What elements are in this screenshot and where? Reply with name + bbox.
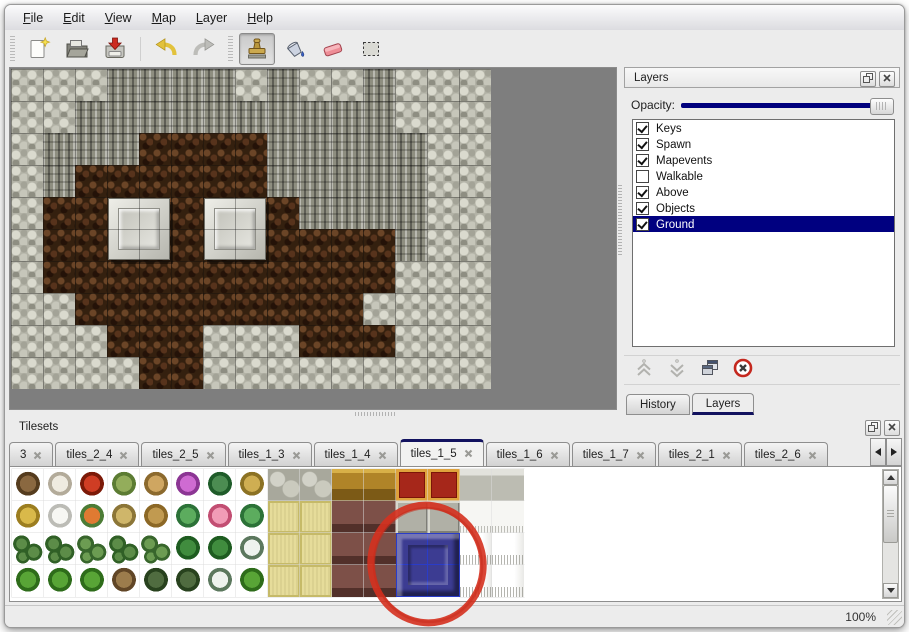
tileset-tile-gold[interactable] bbox=[364, 469, 396, 501]
menu-view[interactable]: View bbox=[95, 8, 142, 28]
map-tile bbox=[203, 133, 235, 165]
map-tile bbox=[299, 293, 331, 325]
tileset-tab-tiles_2_6[interactable]: tiles_2_6 bbox=[744, 442, 828, 466]
zoom-level: 100% bbox=[845, 610, 876, 624]
tab-close-icon[interactable] bbox=[378, 451, 387, 460]
tileset-tab-tiles_2_5[interactable]: tiles_2_5 bbox=[141, 442, 225, 466]
splitter-grip bbox=[618, 185, 622, 255]
map-tile bbox=[459, 261, 491, 293]
map-tile bbox=[427, 325, 459, 357]
tileset-tab-tiles_1_5[interactable]: tiles_1_5 bbox=[400, 439, 484, 466]
tab-close-icon[interactable] bbox=[722, 451, 731, 460]
tileset-tile-wood[interactable] bbox=[332, 565, 364, 597]
tileset-tile-lily[interactable] bbox=[172, 501, 204, 533]
tileset-tab-label: tiles_2_5 bbox=[152, 449, 198, 461]
map-tile bbox=[171, 357, 203, 389]
tabs-scroll-right-button[interactable] bbox=[886, 438, 902, 466]
tileset-tile-drytree[interactable] bbox=[108, 565, 140, 597]
map-tile bbox=[395, 293, 427, 325]
tileset-tile-empty[interactable] bbox=[524, 501, 556, 533]
map-tile bbox=[171, 197, 203, 229]
map-tile bbox=[363, 165, 395, 197]
tileset-tile-mat[interactable] bbox=[268, 565, 300, 597]
map-tile bbox=[203, 357, 235, 389]
tileset-tile-wood[interactable] bbox=[332, 501, 364, 533]
tileset-tile-branch[interactable] bbox=[44, 469, 76, 501]
map-tile bbox=[107, 325, 139, 357]
map-tile bbox=[331, 165, 363, 197]
menu-map[interactable]: Map bbox=[142, 8, 186, 28]
toolbar-grip[interactable] bbox=[228, 36, 233, 62]
vertical-splitter[interactable] bbox=[617, 67, 624, 410]
tileset-tile-mat[interactable] bbox=[300, 565, 332, 597]
map-tile bbox=[427, 229, 459, 261]
tileset-tile-conetree[interactable] bbox=[76, 565, 108, 597]
selected-tile-highlight[interactable] bbox=[396, 533, 460, 597]
map-editor-window: FileEditViewMapLayerHelp Layers Opacity:… bbox=[4, 4, 905, 628]
map-tile bbox=[43, 197, 75, 229]
map-tile bbox=[267, 229, 299, 261]
tileset-tile-stone[interactable] bbox=[300, 469, 332, 501]
redo-button[interactable] bbox=[186, 33, 222, 65]
tileset-tile-silver[interactable] bbox=[460, 469, 492, 501]
map-tile bbox=[107, 357, 139, 389]
layer-checkbox[interactable] bbox=[636, 186, 649, 199]
redo-icon bbox=[191, 36, 217, 62]
map-tile bbox=[171, 293, 203, 325]
tileset-tile-stone[interactable] bbox=[268, 469, 300, 501]
tileset-tile-trunk2[interactable] bbox=[140, 469, 172, 501]
tileset-tile-palm[interactable] bbox=[204, 533, 236, 565]
map-tile bbox=[331, 133, 363, 165]
tileset-tab-3[interactable]: 3 bbox=[9, 442, 53, 466]
map-tile bbox=[363, 325, 395, 357]
layer-name: Walkable bbox=[656, 171, 703, 183]
map-tile bbox=[75, 357, 107, 389]
tileset-tile-mat[interactable] bbox=[268, 501, 300, 533]
map-tile bbox=[331, 69, 363, 101]
tileset-tab-tiles_2_1[interactable]: tiles_2_1 bbox=[658, 442, 742, 466]
tileset-tile-stump[interactable] bbox=[108, 469, 140, 501]
splitter-grip bbox=[355, 412, 395, 416]
map-tile bbox=[139, 325, 171, 357]
tileset-tile-blockgray[interactable] bbox=[428, 501, 460, 533]
map-tile bbox=[395, 261, 427, 293]
map-tile bbox=[267, 357, 299, 389]
eraser-icon bbox=[320, 36, 346, 62]
tileset-tile-conetree[interactable] bbox=[236, 565, 268, 597]
map-tile bbox=[395, 197, 427, 229]
float-panel-button[interactable] bbox=[865, 420, 881, 436]
map-tile bbox=[235, 165, 267, 197]
chevron-down-icon bbox=[666, 357, 688, 384]
map-tile bbox=[171, 261, 203, 293]
triangle-left-icon bbox=[875, 448, 881, 456]
map-tile bbox=[75, 197, 107, 229]
tileset-tile-palm[interactable] bbox=[172, 533, 204, 565]
map-tile bbox=[11, 325, 43, 357]
map-tile bbox=[395, 357, 427, 389]
layer-row-objects[interactable]: Objects bbox=[633, 200, 894, 216]
map-tile bbox=[171, 229, 203, 261]
stone-platform bbox=[108, 198, 170, 260]
menu-edit[interactable]: Edit bbox=[53, 8, 95, 28]
save-icon bbox=[102, 36, 128, 62]
move-layer-up-button[interactable] bbox=[632, 358, 656, 382]
map-tile bbox=[107, 133, 139, 165]
map-tile bbox=[43, 293, 75, 325]
map-tile bbox=[75, 69, 107, 101]
tileset-tile-blockgray[interactable] bbox=[396, 501, 428, 533]
open-button[interactable] bbox=[59, 33, 95, 65]
layer-name: Keys bbox=[656, 123, 682, 135]
layer-checkbox[interactable] bbox=[636, 154, 649, 167]
tileset-tile-mat[interactable] bbox=[300, 501, 332, 533]
map-tile bbox=[427, 293, 459, 325]
horizontal-splitter[interactable] bbox=[9, 410, 902, 418]
layer-list: KeysSpawnMapeventsWalkableAboveObjectsGr… bbox=[632, 119, 895, 347]
map-tile bbox=[235, 357, 267, 389]
tileset-tile-gold[interactable] bbox=[332, 469, 364, 501]
map-tile bbox=[459, 165, 491, 197]
tileset-tab-label: tiles_1_4 bbox=[325, 449, 371, 461]
tileset-tab-bar: 3tiles_2_4tiles_2_5tiles_1_3tiles_1_4til… bbox=[9, 438, 902, 466]
map-tile bbox=[299, 261, 331, 293]
select-button[interactable] bbox=[353, 33, 389, 65]
tileset-tile-grass-dry[interactable] bbox=[108, 501, 140, 533]
tileset-tile-snowpine[interactable] bbox=[236, 533, 268, 565]
layer-name: Objects bbox=[656, 203, 695, 215]
map-tile bbox=[267, 165, 299, 197]
tileset-tile-darktree[interactable] bbox=[140, 565, 172, 597]
map-tile bbox=[235, 133, 267, 165]
tileset-tile-white[interactable] bbox=[492, 501, 524, 533]
map-tile bbox=[331, 293, 363, 325]
tileset-tile-bush[interactable] bbox=[140, 533, 172, 565]
map-tile bbox=[139, 165, 171, 197]
tileset-tile-plant-dry[interactable] bbox=[236, 469, 268, 501]
tileset-tile-lily[interactable] bbox=[236, 501, 268, 533]
map-tile bbox=[459, 101, 491, 133]
tab-close-icon[interactable] bbox=[550, 451, 559, 460]
map-tile bbox=[203, 261, 235, 293]
map-tile bbox=[171, 133, 203, 165]
map-tile bbox=[139, 293, 171, 325]
tileset-tab-tiles_2_4[interactable]: tiles_2_4 bbox=[55, 442, 139, 466]
scroll-up-button[interactable] bbox=[883, 470, 898, 485]
tileset-tile-shrub[interactable] bbox=[108, 533, 140, 565]
map-tile bbox=[299, 197, 331, 229]
map-tile bbox=[427, 197, 459, 229]
map-tile bbox=[459, 229, 491, 261]
layer-row-mapevents[interactable]: Mapevents bbox=[633, 152, 894, 168]
map-tile bbox=[235, 69, 267, 101]
map-tile bbox=[75, 325, 107, 357]
map-tile bbox=[459, 325, 491, 357]
map-tile bbox=[331, 261, 363, 293]
layer-checkbox[interactable] bbox=[636, 138, 649, 151]
tileset-scrollbar[interactable] bbox=[882, 469, 899, 599]
toolbar-grip[interactable] bbox=[10, 36, 15, 62]
undo-icon bbox=[153, 36, 179, 62]
stamp-tool-icon bbox=[244, 36, 270, 62]
map-tile bbox=[395, 325, 427, 357]
tileset-tile-hay[interactable] bbox=[12, 501, 44, 533]
tileset-tile-curtain[interactable] bbox=[460, 565, 492, 597]
map-tile bbox=[331, 101, 363, 133]
tab-close-icon[interactable] bbox=[206, 451, 215, 460]
layer-toolbar bbox=[624, 355, 900, 385]
layer-row-above[interactable]: Above bbox=[633, 184, 894, 200]
map-tile bbox=[235, 293, 267, 325]
map-tile bbox=[427, 69, 459, 101]
tileset-tab-label: tiles_2_6 bbox=[755, 449, 801, 461]
layer-row-ground[interactable]: Ground bbox=[633, 216, 894, 232]
layer-row-walkable[interactable]: Walkable bbox=[633, 168, 894, 184]
map-tile bbox=[107, 69, 139, 101]
map-tile bbox=[11, 133, 43, 165]
opacity-slider-handle[interactable] bbox=[870, 98, 894, 115]
tileset-tile-curtain[interactable] bbox=[460, 533, 492, 565]
tileset-tab-tiles_1_7[interactable]: tiles_1_7 bbox=[572, 442, 656, 466]
undo-button[interactable] bbox=[148, 33, 184, 65]
map-tile bbox=[459, 197, 491, 229]
map-tile bbox=[75, 229, 107, 261]
tileset-tile-carpet[interactable] bbox=[428, 469, 460, 501]
layer-row-keys[interactable]: Keys bbox=[633, 120, 894, 136]
map-tile bbox=[43, 165, 75, 197]
triangle-right-icon bbox=[891, 448, 897, 456]
scroll-down-button[interactable] bbox=[883, 583, 898, 598]
layer-name: Above bbox=[656, 187, 689, 199]
eraser-button[interactable] bbox=[315, 33, 351, 65]
new-button[interactable] bbox=[21, 33, 57, 65]
triangle-down-icon bbox=[887, 588, 895, 593]
tileset-tile-flower-purple[interactable] bbox=[172, 469, 204, 501]
map-tile bbox=[171, 101, 203, 133]
map-tile bbox=[203, 165, 235, 197]
layer-checkbox[interactable] bbox=[636, 170, 649, 183]
delete-layer-button[interactable] bbox=[731, 358, 755, 382]
layer-row-spawn[interactable]: Spawn bbox=[633, 136, 894, 152]
triangle-up-icon bbox=[887, 475, 895, 480]
map-tile bbox=[427, 101, 459, 133]
layer-checkbox[interactable] bbox=[636, 202, 649, 215]
map-tile bbox=[363, 69, 395, 101]
map-tile bbox=[171, 165, 203, 197]
layer-checkbox[interactable] bbox=[636, 122, 649, 135]
map-tile bbox=[11, 293, 43, 325]
opacity-slider-track[interactable] bbox=[681, 103, 886, 108]
move-layer-down-button[interactable] bbox=[665, 358, 689, 382]
map-tile bbox=[75, 261, 107, 293]
map-tile bbox=[363, 357, 395, 389]
map-tile bbox=[459, 293, 491, 325]
tileset-tile-flowers-pink[interactable] bbox=[204, 501, 236, 533]
map-tile bbox=[203, 325, 235, 357]
map-tile bbox=[75, 293, 107, 325]
map-tile bbox=[11, 197, 43, 229]
tileset-tile-curtain[interactable] bbox=[492, 533, 524, 565]
chevron-up-icon bbox=[633, 357, 655, 384]
map-tile bbox=[43, 357, 75, 389]
tileset-tile-empty[interactable] bbox=[524, 565, 556, 597]
tileset-tile-conetree[interactable] bbox=[12, 565, 44, 597]
layer-name: Mapevents bbox=[656, 155, 712, 167]
tileset-tile-shrub[interactable] bbox=[12, 533, 44, 565]
map-tile bbox=[299, 133, 331, 165]
tileset-tile-snowpine[interactable] bbox=[204, 565, 236, 597]
tab-close-icon[interactable] bbox=[464, 449, 473, 458]
tilesets-dock-panel: Tilesets 3tiles_2_4tiles_2_5tiles_1_3til… bbox=[9, 418, 902, 608]
layers-panel-title: Layers bbox=[634, 72, 669, 84]
tileset-content bbox=[9, 466, 902, 602]
layers-panel-titlebar: Layers bbox=[624, 67, 900, 88]
tileset-tab-tiles_1_6[interactable]: tiles_1_6 bbox=[486, 442, 570, 466]
close-panel-button[interactable] bbox=[884, 420, 900, 436]
map-tile bbox=[203, 101, 235, 133]
map-tile bbox=[427, 133, 459, 165]
tileset-tile-carpet[interactable] bbox=[396, 469, 428, 501]
tileset-tile-darktree[interactable] bbox=[172, 565, 204, 597]
fill-button[interactable] bbox=[277, 33, 313, 65]
float-panel-button[interactable] bbox=[860, 71, 876, 87]
tileset-tile-flower-red[interactable] bbox=[76, 469, 108, 501]
stamp-button[interactable] bbox=[239, 33, 275, 65]
float-icon bbox=[868, 419, 878, 437]
window-resize-grip[interactable] bbox=[887, 610, 902, 625]
tileset-tile-mat[interactable] bbox=[268, 533, 300, 565]
map-canvas[interactable] bbox=[11, 69, 491, 389]
tilesets-panel-titlebar: Tilesets bbox=[9, 418, 902, 438]
map-tile bbox=[363, 293, 395, 325]
map-tile bbox=[331, 197, 363, 229]
layer-checkbox[interactable] bbox=[636, 218, 649, 231]
map-tile bbox=[139, 357, 171, 389]
map-tile bbox=[43, 101, 75, 133]
map-tile bbox=[267, 69, 299, 101]
tileset-tile-leaves[interactable] bbox=[140, 501, 172, 533]
toolbar-separator bbox=[140, 37, 141, 61]
float-icon bbox=[863, 70, 873, 88]
tab-close-icon[interactable] bbox=[636, 451, 645, 460]
tabs-scroll-left-button[interactable] bbox=[870, 438, 886, 466]
tileset-tile-curtain[interactable] bbox=[492, 565, 524, 597]
map-panel bbox=[9, 67, 617, 410]
delete-icon bbox=[732, 357, 754, 384]
map-tile bbox=[107, 261, 139, 293]
tileset-tile-conetree[interactable] bbox=[44, 565, 76, 597]
tileset-tile-fern[interactable] bbox=[204, 469, 236, 501]
tileset-tile-mat[interactable] bbox=[300, 533, 332, 565]
map-tile bbox=[299, 229, 331, 261]
map-tile bbox=[75, 101, 107, 133]
map-tile bbox=[75, 133, 107, 165]
tab-close-icon[interactable] bbox=[292, 451, 301, 460]
map-tile bbox=[267, 261, 299, 293]
open-folder-icon bbox=[64, 36, 90, 62]
close-panel-button[interactable] bbox=[879, 71, 895, 87]
tileset-tile-wood[interactable] bbox=[364, 565, 396, 597]
map-tile bbox=[203, 293, 235, 325]
tileset-tile-silver[interactable] bbox=[492, 469, 524, 501]
layer-name: Spawn bbox=[656, 139, 691, 151]
tileset-tab-tiles_1_4[interactable]: tiles_1_4 bbox=[314, 442, 398, 466]
map-tile bbox=[395, 229, 427, 261]
tileset-tile-wood[interactable] bbox=[364, 501, 396, 533]
map-tile bbox=[299, 69, 331, 101]
map-tile bbox=[11, 261, 43, 293]
map-tile bbox=[395, 165, 427, 197]
map-tile bbox=[11, 165, 43, 197]
tileset-tile-snowmound[interactable] bbox=[44, 501, 76, 533]
map-tile bbox=[75, 165, 107, 197]
menu-file[interactable]: File bbox=[13, 8, 53, 28]
map-tile bbox=[395, 133, 427, 165]
tileset-tile-bush[interactable] bbox=[76, 533, 108, 565]
map-tile bbox=[107, 293, 139, 325]
map-tile bbox=[107, 165, 139, 197]
tileset-tile-trunk[interactable] bbox=[12, 469, 44, 501]
map-tile bbox=[427, 357, 459, 389]
save-button[interactable] bbox=[97, 33, 133, 65]
map-tile bbox=[363, 133, 395, 165]
map-tile bbox=[299, 101, 331, 133]
menu-help[interactable]: Help bbox=[237, 8, 283, 28]
tileset-tile-wood[interactable] bbox=[332, 533, 364, 565]
tileset-tile-shrub[interactable] bbox=[44, 533, 76, 565]
tileset-tab-label: tiles_1_3 bbox=[239, 449, 285, 461]
toolbar bbox=[5, 30, 904, 67]
tileset-tile-empty[interactable] bbox=[524, 533, 556, 565]
tileset-tile-empty[interactable] bbox=[524, 469, 556, 501]
map-tile bbox=[299, 325, 331, 357]
tileset-tab-tiles_1_3[interactable]: tiles_1_3 bbox=[228, 442, 312, 466]
map-tile bbox=[395, 101, 427, 133]
opacity-row: Opacity: bbox=[624, 94, 900, 116]
map-tile bbox=[427, 261, 459, 293]
map-tile bbox=[331, 325, 363, 357]
tab-scroll-buttons bbox=[870, 438, 902, 466]
stone-platform bbox=[204, 198, 266, 260]
select-rect-icon bbox=[358, 36, 384, 62]
tileset-tile-white[interactable] bbox=[460, 501, 492, 533]
tab-close-icon[interactable] bbox=[808, 451, 817, 460]
tab-close-icon[interactable] bbox=[33, 451, 42, 460]
duplicate-layer-button[interactable] bbox=[698, 358, 722, 382]
map-tile bbox=[139, 101, 171, 133]
tileset-tab-label: tiles_1_7 bbox=[583, 449, 629, 461]
menu-layer[interactable]: Layer bbox=[186, 8, 237, 28]
map-tile bbox=[43, 133, 75, 165]
map-tile bbox=[203, 69, 235, 101]
tileset-tile-wood[interactable] bbox=[364, 533, 396, 565]
map-tile bbox=[331, 357, 363, 389]
map-tile bbox=[107, 101, 139, 133]
map-tile bbox=[459, 69, 491, 101]
tileset-tab-label: tiles_1_5 bbox=[411, 448, 457, 460]
map-tile bbox=[11, 229, 43, 261]
scrollbar-thumb[interactable] bbox=[883, 485, 898, 543]
opacity-slider[interactable] bbox=[681, 94, 894, 116]
map-tile bbox=[43, 229, 75, 261]
fill-bucket-icon bbox=[282, 36, 308, 62]
map-tile bbox=[267, 325, 299, 357]
map-tile bbox=[267, 101, 299, 133]
tileset-tile-flowers-orange[interactable] bbox=[76, 501, 108, 533]
tab-close-icon[interactable] bbox=[119, 451, 128, 460]
tileset-tab-label: tiles_1_6 bbox=[497, 449, 543, 461]
